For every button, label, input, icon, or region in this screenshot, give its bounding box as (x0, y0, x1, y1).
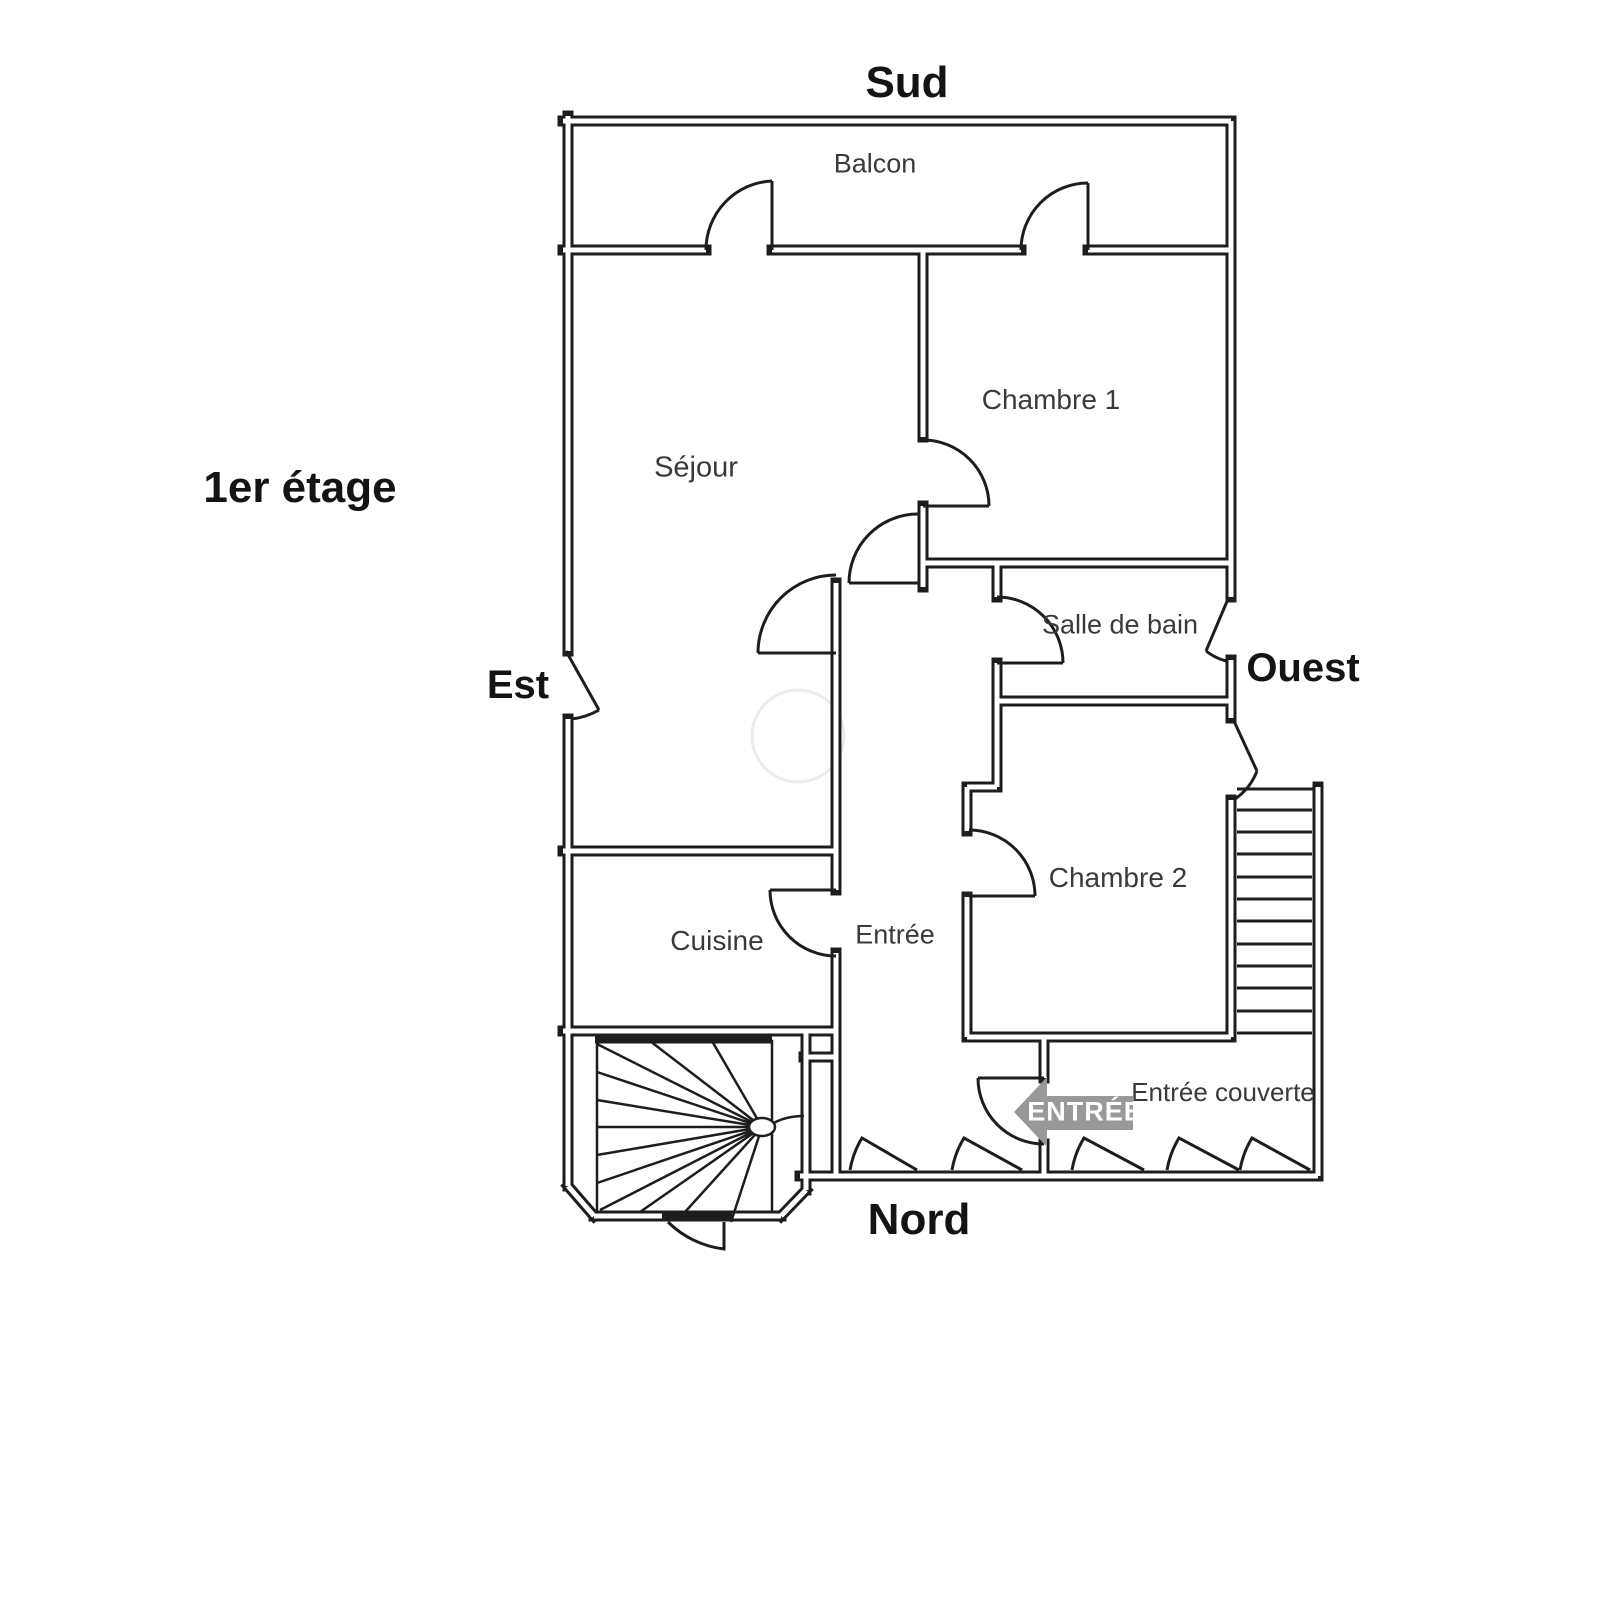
window-nord-5 (1240, 1138, 1310, 1170)
stairs-steps (1237, 810, 1312, 1033)
floor-plan-drawing (0, 0, 1600, 1600)
room-label-entree-couverte: Entrée couverte (1131, 1079, 1315, 1105)
spiral-treads (597, 1041, 762, 1222)
window-salle-de-bain (1206, 599, 1228, 661)
room-label-chambre2: Chambre 2 (1049, 864, 1188, 892)
room-label-sejour: Séjour (654, 454, 738, 483)
spiral-newel (749, 1118, 775, 1136)
entrance-arrow-label: ENTRÉE (1027, 1099, 1143, 1126)
window-nord-4 (1167, 1138, 1239, 1170)
walls-core (563, 116, 1318, 1216)
door-cuisine (770, 890, 836, 956)
window-nord-1 (850, 1138, 917, 1170)
watermark-circle (752, 690, 844, 782)
door-balcon-sejour (706, 181, 772, 250)
floor-plan-page: Sud 1er étage Est Ouest Nord Balcon Séjo… (0, 0, 1600, 1600)
room-label-chambre1: Chambre 1 (982, 386, 1121, 414)
door-balcon-chambre1 (1021, 183, 1088, 250)
door-entree-inner (849, 514, 918, 583)
exterior-stairs (1237, 789, 1313, 1033)
door-chambre1 (923, 440, 989, 506)
floor-title: 1er étage (203, 466, 396, 510)
spiral-handrail-link (772, 1116, 804, 1124)
window-est (566, 651, 599, 719)
compass-label-est: Est (487, 665, 549, 705)
room-label-cuisine: Cuisine (670, 927, 763, 955)
doors (706, 181, 1088, 1144)
window-nord-3 (1072, 1138, 1144, 1170)
door-chambre2 (969, 830, 1035, 896)
spiral-staircase (597, 1041, 804, 1222)
compass-label-sud: Sud (865, 61, 948, 105)
window-nord-2 (952, 1138, 1022, 1170)
compass-label-nord: Nord (868, 1198, 971, 1242)
walls-outline (563, 116, 1318, 1216)
room-label-salle-de-bain: Salle de bain (1042, 612, 1198, 639)
compass-label-ouest: Ouest (1246, 648, 1359, 688)
room-label-balcon: Balcon (834, 151, 917, 178)
door-chambre2-exterieur (1233, 719, 1257, 799)
window-bay (668, 1222, 724, 1249)
room-label-entree: Entrée (855, 922, 935, 949)
door-sejour-entree (758, 575, 836, 653)
walls (563, 116, 1318, 1216)
